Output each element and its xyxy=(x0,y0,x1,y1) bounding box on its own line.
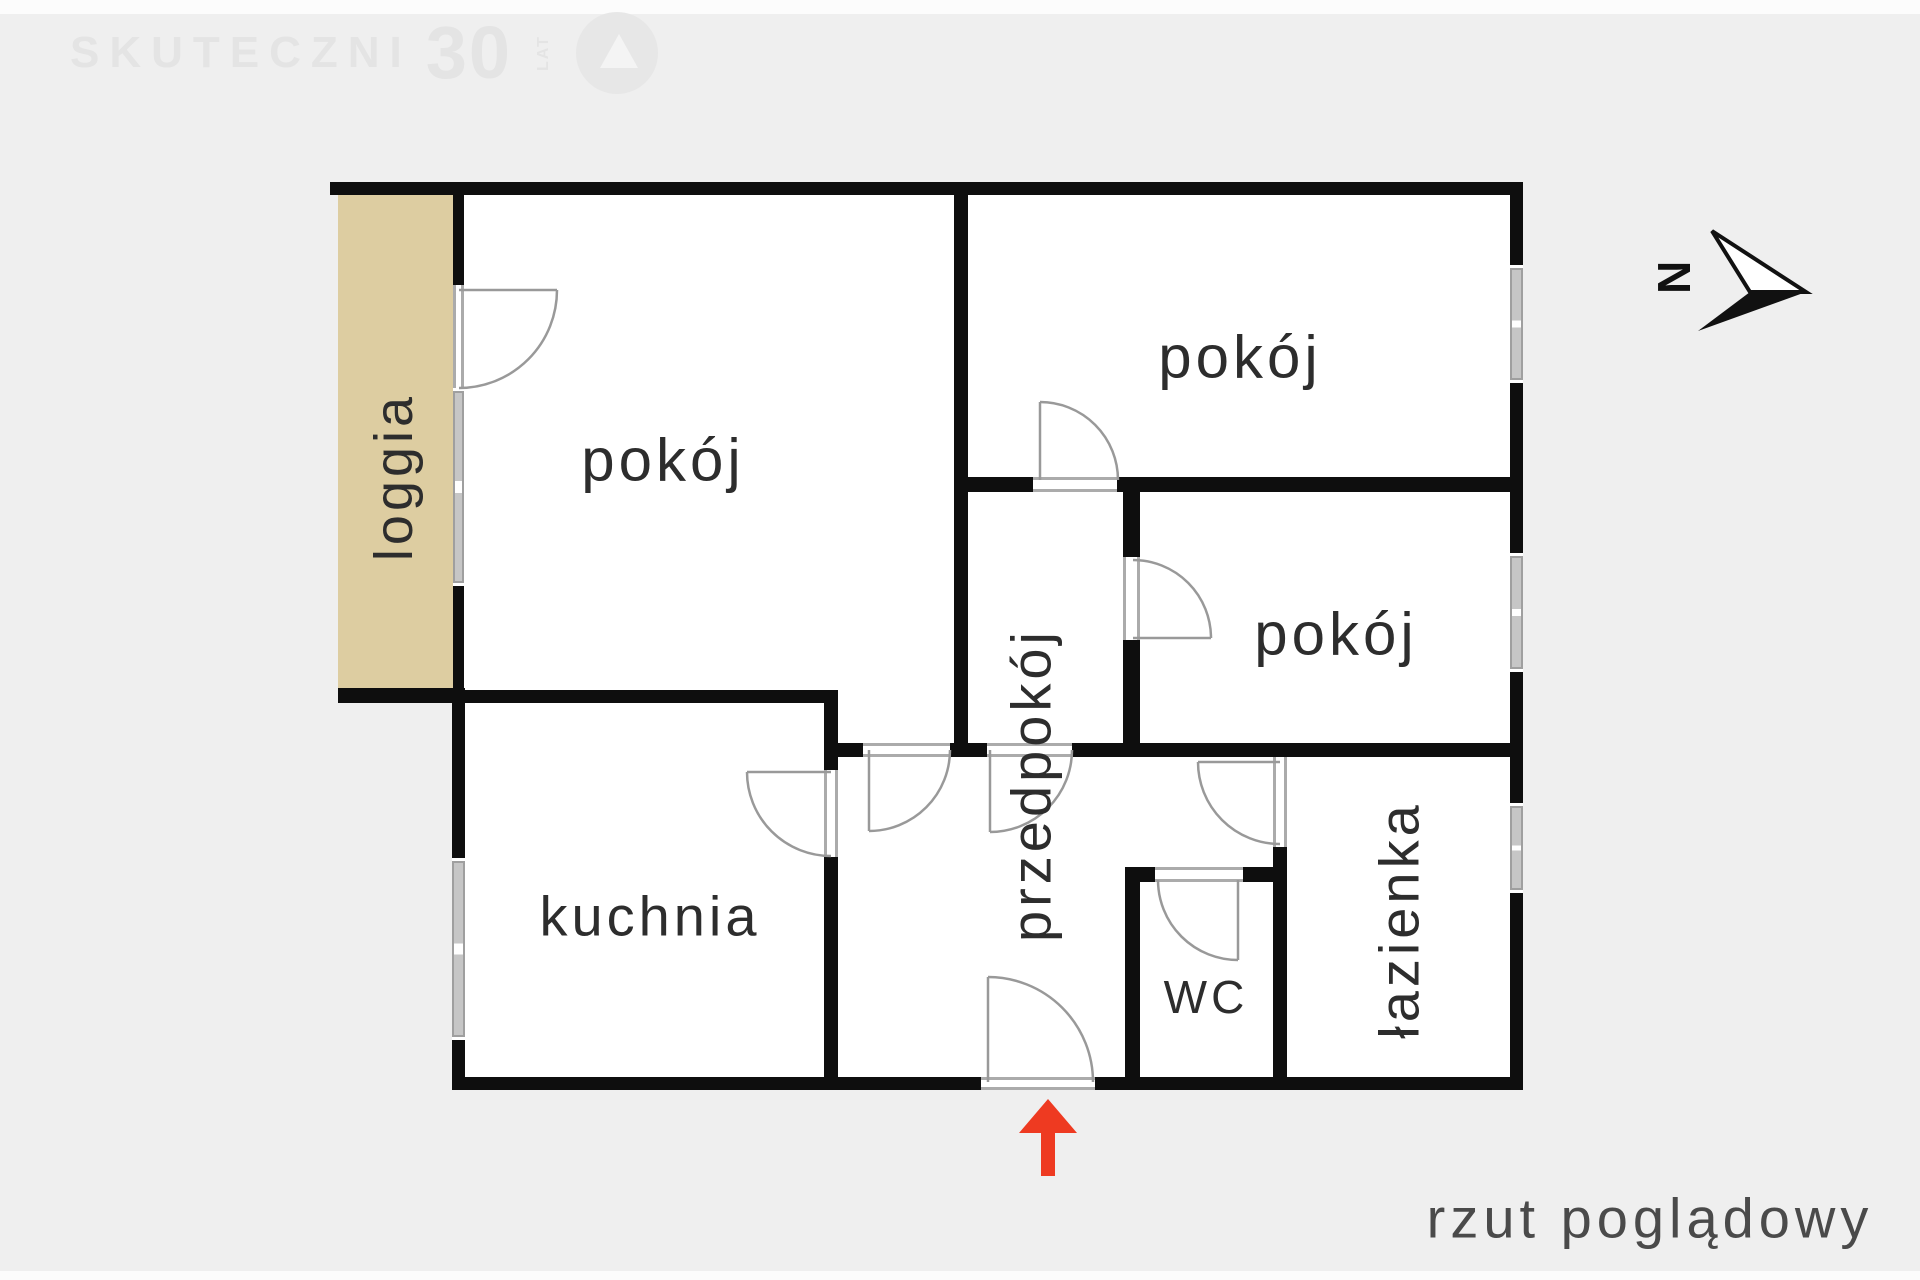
wall-bottom-right xyxy=(1095,1077,1523,1090)
label-lazienka: łazienka xyxy=(1367,801,1432,1038)
wall-left-seg2 xyxy=(452,1040,465,1077)
wall-pokoj-mid-left-seg1 xyxy=(1123,492,1140,557)
wall-wc-left xyxy=(1125,867,1140,1077)
agency-logo-icon xyxy=(576,12,658,94)
label-przedpokoj: przedpokój xyxy=(999,628,1064,942)
door-opening-entrance xyxy=(981,1077,1095,1090)
wall-top xyxy=(330,182,1523,195)
door-opening-pokoj-top xyxy=(1033,477,1117,492)
wall-wc-top-right xyxy=(1243,867,1287,882)
wall-wc-top-left xyxy=(1125,867,1155,882)
label-kuchnia: kuchnia xyxy=(539,884,760,949)
window-pokoj-mid xyxy=(1510,553,1523,672)
wall-kuchnia-top xyxy=(465,690,838,703)
wall-left-seg1 xyxy=(452,688,465,858)
entrance-arrow-icon xyxy=(1019,1099,1077,1176)
agency-watermark: SKUTECZNI 30 LAT xyxy=(70,12,658,94)
compass-north-letter: N xyxy=(1648,261,1700,294)
compass-needle-outline xyxy=(1712,231,1806,292)
wall-loggia-seg2 xyxy=(453,586,464,688)
wall-central-vertical xyxy=(954,195,968,757)
window-kuchnia xyxy=(452,858,465,1040)
door-opening-kuchnia xyxy=(824,770,838,857)
watermark-unit: LAT xyxy=(535,35,553,71)
wall-right-seg2 xyxy=(1510,383,1523,492)
floor-plan-page: SKUTECZNI 30 LAT xyxy=(0,0,1920,1280)
label-pokoj-mid: pokój xyxy=(1254,600,1417,669)
wall-right-seg3 xyxy=(1510,492,1523,553)
wall-right-seg4 xyxy=(1510,672,1523,757)
label-loggia: loggia xyxy=(363,393,425,561)
door-opening-pokoj-mid xyxy=(1123,557,1140,640)
wall-kuchnia-right-seg1 xyxy=(824,690,838,770)
label-pokoj-big: pokój xyxy=(581,426,744,495)
door-opening-wc xyxy=(1155,867,1243,882)
bottom-border-band xyxy=(0,1271,1920,1280)
wall-right-seg5 xyxy=(1510,757,1523,803)
wall-hall-seg3 xyxy=(1072,743,1510,757)
wall-pokoj-mid-left-seg2 xyxy=(1123,640,1140,757)
wall-przedpokoj-top-left xyxy=(954,477,1033,492)
wall-right-seg6 xyxy=(1510,893,1523,1090)
watermark-name: SKUTECZNI xyxy=(70,28,412,78)
wall-bottom-left xyxy=(452,1077,981,1090)
wall-loggia-seg1 xyxy=(453,195,464,285)
wall-pokoj-mid-top xyxy=(1117,477,1510,492)
window-lazienka xyxy=(1510,803,1523,893)
wall-hall-seg1 xyxy=(838,743,863,757)
window-pokoj-top xyxy=(1510,265,1523,383)
wall-hall-seg2 xyxy=(950,743,987,757)
north-compass: N xyxy=(1648,231,1806,331)
door-opening-balcony xyxy=(453,285,464,388)
watermark-number: 30 xyxy=(426,20,512,86)
compass-needle-solid xyxy=(1698,292,1806,331)
wall-right-seg1 xyxy=(1510,195,1523,265)
door-opening-lazienka xyxy=(1273,757,1287,847)
plan-caption: rzut poglądowy xyxy=(1427,1186,1874,1251)
wall-kuchnia-right-seg2 xyxy=(824,857,838,1077)
door-opening-pokoj-big xyxy=(863,743,950,757)
window-loggia xyxy=(453,388,464,586)
wall-loggia-bottom xyxy=(338,688,465,703)
label-pokoj-top: pokój xyxy=(1158,323,1321,392)
label-wc: WC xyxy=(1164,970,1249,1024)
